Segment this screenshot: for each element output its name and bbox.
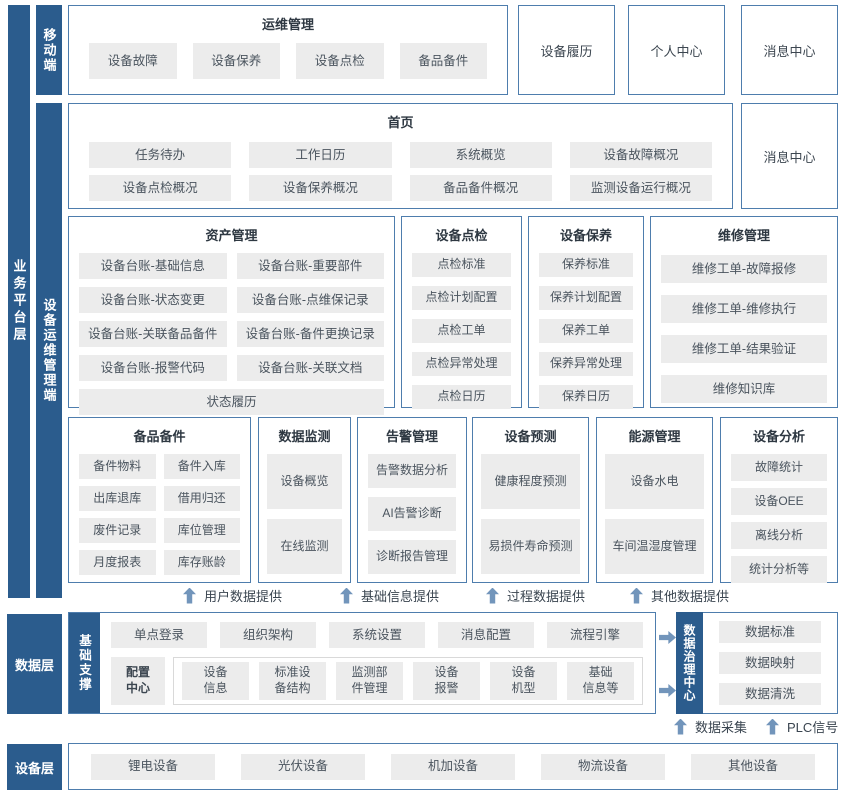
flow-label: PLC信号	[787, 717, 838, 736]
config-center-node: 配置 中心	[111, 657, 165, 705]
section-basic-support: 基础支撑 单点登录组织架构系统设置消息配置流程引擎 配置 中心 设备 信息标准设…	[68, 612, 656, 714]
node-list: 健康程度预测易损件寿命预测	[481, 454, 580, 574]
diagram-node: 设备台账-备件更换记录	[237, 321, 385, 347]
section-title: 数据监测	[259, 418, 350, 447]
node-row: 设备故障设备保养设备点检备品备件	[89, 43, 487, 79]
node-list: 告警数据分析AI告警诊断诊断报告管理	[368, 454, 456, 574]
diagram-node: 设备概览	[267, 454, 342, 509]
section-title: 首页	[69, 104, 732, 133]
node-list: 设备水电车间温湿度管理	[605, 454, 704, 574]
diagram-node: 出库退库	[79, 486, 156, 511]
right-arrow-icon	[659, 631, 676, 644]
diagram-node: 备品备件概况	[410, 175, 552, 201]
diagram-node: 设备保养	[193, 43, 281, 79]
section-ops-mgmt: 运维管理 设备故障设备保养设备点检备品备件	[68, 5, 508, 95]
diagram-node: 维修工单-故障报修	[661, 255, 827, 283]
up-arrow-icon	[674, 719, 687, 735]
up-arrow-icon	[486, 588, 499, 604]
section-data-governance: 数据治理中心 数据标准数据映射数据清洗	[676, 612, 838, 714]
flow-basic-info: 基础信息提供	[340, 586, 439, 605]
diagram-node: 维修工单-结果验证	[661, 335, 827, 363]
node-row: 设备点检概况设备保养概况备品备件概况监测设备运行概况	[89, 175, 712, 201]
diagram-node: 设备台账-状态变更	[79, 287, 227, 313]
layer-bar-device: 设备层	[7, 744, 62, 790]
diagram-node: 故障统计	[731, 454, 827, 481]
section-device-predict: 设备预测 健康程度预测易损件寿命预测	[472, 417, 589, 583]
node-grid: 备件物料备件入库出库退库借用归还废件记录库位管理月度报表库存账龄	[79, 454, 240, 575]
section-title: 维修管理	[651, 217, 837, 246]
section-energy-mgmt: 能源管理 设备水电车间温湿度管理	[596, 417, 713, 583]
section-title: 备品备件	[69, 418, 250, 447]
flow-label: 基础信息提供	[361, 586, 439, 605]
node-list: 数据标准数据映射数据清洗	[703, 612, 838, 714]
diagram-node: 光伏设备	[241, 754, 365, 780]
config-sub-box: 设备 信息标准设 备结构监测部 件管理设备 报警设备 机型基础 信息等	[173, 657, 643, 705]
diagram-node: 健康程度预测	[481, 454, 580, 509]
section-title: 运维管理	[69, 6, 507, 35]
diagram-node: 保养计划配置	[539, 286, 633, 310]
node-list: 维修工单-故障报修维修工单-维修执行维修工单-结果验证维修知识库	[661, 255, 827, 403]
node-list: 故障统计设备OEE离线分析统计分析等	[731, 454, 827, 583]
diagram-node: 统计分析等	[731, 556, 827, 583]
diagram-node: 系统设置	[329, 622, 425, 648]
section-title: 设备预测	[473, 418, 588, 447]
card-message-center-top: 消息中心	[741, 5, 838, 95]
diagram-node: 监测设备运行概况	[570, 175, 712, 201]
node-list: 点检标准点检计划配置点检工单点检异常处理点检日历	[412, 253, 511, 409]
diagram-node: 保养异常处理	[539, 352, 633, 376]
diagram-node: 告警数据分析	[368, 454, 456, 488]
diagram-node: 数据清洗	[719, 683, 821, 705]
diagram-node: 月度报表	[79, 550, 156, 575]
governance-label: 数据治理中心	[676, 612, 703, 714]
flow-plc-signal: PLC信号	[766, 717, 838, 736]
diagram-node: 点检标准	[412, 253, 511, 277]
diagram-node: 诊断报告管理	[368, 540, 456, 574]
diagram-node: 设备台账-基础信息	[79, 253, 227, 279]
diagram-node: 数据映射	[719, 652, 821, 674]
node-row: 单点登录组织架构系统设置消息配置流程引擎	[111, 622, 643, 648]
section-inspection: 设备点检 点检标准点检计划配置点检工单点检异常处理点检日历	[401, 216, 522, 408]
node-list: 保养标准保养计划配置保养工单保养异常处理保养日历	[539, 253, 633, 409]
section-title: 能源管理	[597, 418, 712, 447]
diagram-node: 离线分析	[731, 522, 827, 549]
up-arrow-icon	[340, 588, 353, 604]
diagram-node: 单点登录	[111, 622, 207, 648]
up-arrow-icon	[183, 588, 196, 604]
section-title: 设备保养	[529, 217, 643, 246]
diagram-node: 设备故障概况	[570, 142, 712, 168]
diagram-node: 设备台账-重要部件	[237, 253, 385, 279]
layer-bar-data: 数据层	[7, 614, 62, 714]
diagram-node: 设备台账-点维保记录	[237, 287, 385, 313]
diagram-node: 库存账龄	[164, 550, 241, 575]
section-data-monitor: 数据监测 设备概览在线监测	[258, 417, 351, 583]
section-title: 资产管理	[69, 217, 394, 246]
diagram-node: 设备点检概况	[89, 175, 231, 201]
flow-label: 其他数据提供	[651, 586, 729, 605]
diagram-node: 机加设备	[391, 754, 515, 780]
diagram-node: 设备台账-关联文档	[237, 355, 385, 381]
up-arrow-icon	[766, 719, 779, 735]
diagram-node: 任务待办	[89, 142, 231, 168]
diagram-node: 点检计划配置	[412, 286, 511, 310]
right-arrow-icon	[659, 684, 676, 697]
node-grid: 设备台账-基础信息设备台账-重要部件设备台账-状态变更设备台账-点维保记录设备台…	[79, 253, 384, 381]
layer-bar-business-platform: 业务平台层	[8, 5, 30, 598]
section-title: 告警管理	[358, 418, 466, 447]
flow-data-collect: 数据采集	[674, 717, 747, 736]
node-row: 任务待办工作日历系统概览设备故障概况	[89, 142, 712, 168]
diagram-node: 设备水电	[605, 454, 704, 509]
node-row: 配置 中心 设备 信息标准设 备结构监测部 件管理设备 报警设备 机型基础 信息…	[111, 657, 643, 705]
layer-bar-mobile: 移动端	[36, 5, 62, 95]
diagram-node: 设备 机型	[490, 662, 557, 700]
diagram-node: 设备台账-报警代码	[79, 355, 227, 381]
flow-label: 用户数据提供	[204, 586, 282, 605]
diagram-node: 标准设 备结构	[259, 662, 326, 700]
diagram-node: 设备 报警	[413, 662, 480, 700]
diagram-node: 物流设备	[541, 754, 665, 780]
card-personal-center: 个人中心	[628, 5, 725, 95]
diagram-node: 锂电设备	[91, 754, 215, 780]
section-spare-parts: 备品备件 备件物料备件入库出库退库借用归还废件记录库位管理月度报表库存账龄	[68, 417, 251, 583]
flow-user-data: 用户数据提供	[183, 586, 282, 605]
flow-process-data: 过程数据提供	[486, 586, 585, 605]
diagram-node: 系统概览	[410, 142, 552, 168]
diagram-node: 借用归还	[164, 486, 241, 511]
diagram-node: 其他设备	[691, 754, 815, 780]
section-repair-mgmt: 维修管理 维修工单-故障报修维修工单-维修执行维修工单-结果验证维修知识库	[650, 216, 838, 408]
diagram-node: 库位管理	[164, 518, 241, 543]
diagram-node: 备件入库	[164, 454, 241, 479]
diagram-node: 组织架构	[220, 622, 316, 648]
diagram-node: 维修工单-维修执行	[661, 295, 827, 323]
diagram-node: 废件记录	[79, 518, 156, 543]
diagram-node: 数据标准	[719, 621, 821, 643]
diagram-node: 点检异常处理	[412, 352, 511, 376]
diagram-node: 设备点检	[296, 43, 384, 79]
flow-label: 数据采集	[695, 717, 747, 736]
diagram-node: 保养标准	[539, 253, 633, 277]
diagram-node: 保养日历	[539, 385, 633, 409]
diagram-node: 备件物料	[79, 454, 156, 479]
diagram-node: 保养工单	[539, 319, 633, 343]
diagram-node: 基础 信息等	[567, 662, 634, 700]
diagram-node: 设备OEE	[731, 488, 827, 515]
architecture-diagram: 业务平台层 移动端 设备运维管理端 运维管理 设备故障设备保养设备点检备品备件 …	[0, 0, 841, 794]
section-title: 设备点检	[402, 217, 521, 246]
section-maintenance: 设备保养 保养标准保养计划配置保养工单保养异常处理保养日历	[528, 216, 644, 408]
section-device-analysis: 设备分析 故障统计设备OEE离线分析统计分析等	[720, 417, 838, 583]
card-device-history: 设备履历	[518, 5, 615, 95]
diagram-node: 点检日历	[412, 385, 511, 409]
up-arrow-icon	[630, 588, 643, 604]
diagram-node: 易损件寿命预测	[481, 519, 580, 574]
section-home: 首页 任务待办工作日历系统概览设备故障概况 设备点检概况设备保养概况备品备件概况…	[68, 103, 733, 209]
diagram-node: 备品备件	[400, 43, 488, 79]
diagram-node: 设备台账-关联备品备件	[79, 321, 227, 347]
layer-bar-ops-client: 设备运维管理端	[36, 103, 62, 598]
basic-support-label: 基础支撑	[69, 613, 100, 713]
flow-other-data: 其他数据提供	[630, 586, 729, 605]
section-alarm-mgmt: 告警管理 告警数据分析AI告警诊断诊断报告管理	[357, 417, 467, 583]
diagram-node: 维修知识库	[661, 375, 827, 403]
diagram-node: 点检工单	[412, 319, 511, 343]
section-device-layer: 锂电设备光伏设备机加设备物流设备其他设备	[68, 743, 838, 790]
diagram-node: 工作日历	[249, 142, 391, 168]
diagram-node: 状态履历	[79, 389, 384, 415]
diagram-node: 设备 信息	[182, 662, 249, 700]
diagram-node: AI告警诊断	[368, 497, 456, 531]
diagram-node: 设备故障	[89, 43, 177, 79]
diagram-node: 消息配置	[438, 622, 534, 648]
section-title: 设备分析	[721, 418, 837, 447]
node-list: 设备概览在线监测	[267, 454, 342, 574]
flow-label: 过程数据提供	[507, 586, 585, 605]
diagram-node: 车间温湿度管理	[605, 519, 704, 574]
card-message-center-home: 消息中心	[741, 103, 838, 209]
diagram-node: 监测部 件管理	[336, 662, 403, 700]
diagram-node: 流程引擎	[547, 622, 643, 648]
diagram-node: 设备保养概况	[249, 175, 391, 201]
diagram-node: 在线监测	[267, 519, 342, 574]
section-asset-mgmt: 资产管理 设备台账-基础信息设备台账-重要部件设备台账-状态变更设备台账-点维保…	[68, 216, 395, 408]
